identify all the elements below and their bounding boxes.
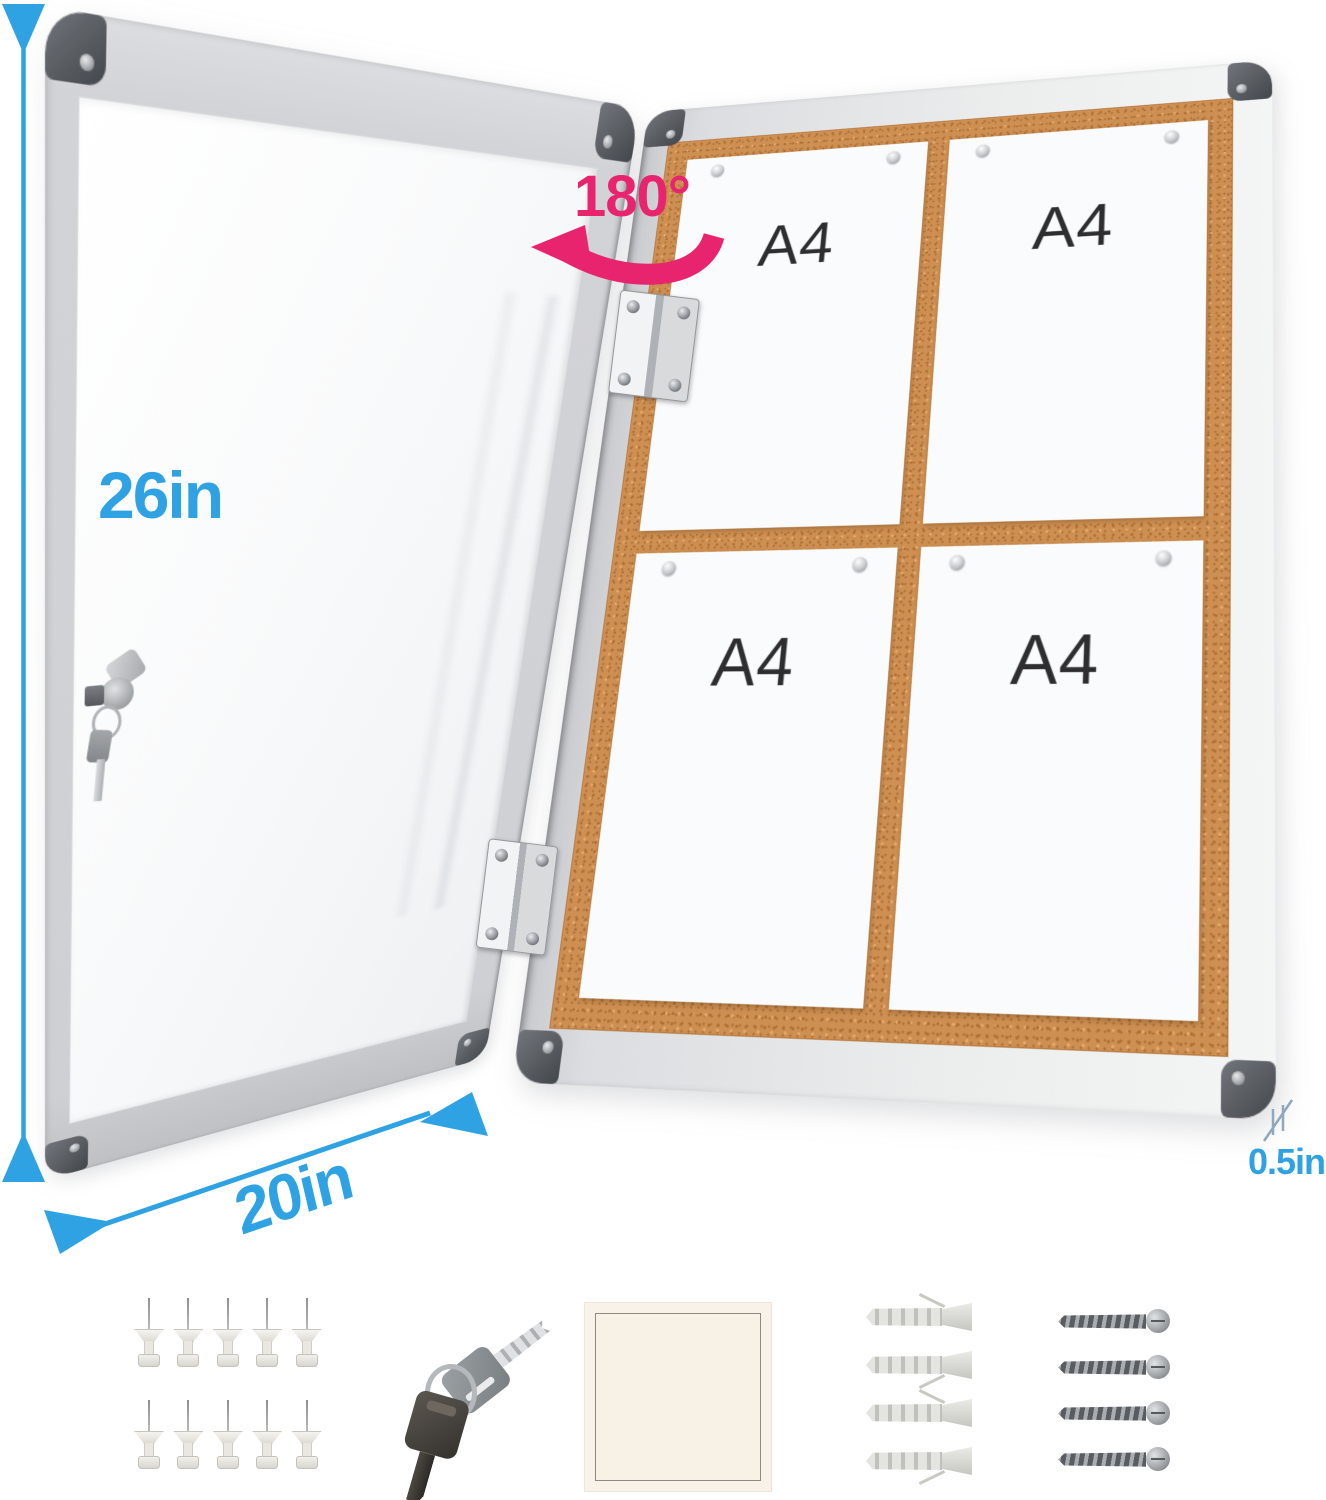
cork-surface: A4 A4 A4 A4 — [549, 98, 1233, 1057]
a4-paper-label: A4 — [675, 623, 798, 1005]
a4-paper: A4 — [579, 547, 898, 1008]
pin-neck — [144, 1443, 154, 1457]
pin-needle — [148, 1298, 150, 1330]
a4-paper: A4 — [923, 120, 1208, 524]
key-blade — [405, 1451, 435, 1500]
wall-anchor-icon — [864, 1444, 976, 1478]
adhesive-pad-inner — [595, 1313, 761, 1481]
screw-shaft — [1058, 1452, 1146, 1467]
corner-cap-icon — [455, 1027, 491, 1066]
hanging-key-icon — [86, 730, 113, 763]
corner-cap-icon — [45, 1133, 88, 1180]
pin-needle — [266, 1400, 268, 1432]
screw-icon — [1058, 1444, 1170, 1474]
anchor-wing — [919, 1470, 945, 1485]
corner-cap-icon — [1221, 1059, 1276, 1120]
screw-icon — [1058, 1352, 1170, 1382]
corner-cap-icon — [512, 1029, 565, 1084]
width-arrowhead-right-icon — [420, 1092, 488, 1136]
pin-needle — [306, 1400, 308, 1432]
push-pin-icon — [976, 144, 990, 157]
anchor-body — [866, 1356, 942, 1374]
pin-neck — [262, 1341, 272, 1355]
pin-base — [256, 1456, 278, 1469]
width-dimension-label: 20in — [196, 1132, 390, 1257]
height-arrowhead-bottom-icon — [2, 1138, 45, 1182]
hinge-screw-icon — [535, 853, 549, 867]
pin-needle — [227, 1400, 229, 1432]
pin-base — [138, 1456, 160, 1469]
pin-base — [217, 1456, 239, 1469]
push-pin-icon — [886, 151, 900, 164]
adhesive-pad-icon — [584, 1302, 772, 1492]
pin-needle — [227, 1298, 229, 1330]
pin-needle — [148, 1400, 150, 1432]
a4-papers-grid: A4 A4 A4 A4 — [579, 120, 1208, 1021]
pin-base — [177, 1456, 199, 1469]
wall-anchor-icon — [864, 1300, 976, 1334]
screw-shaft — [1058, 1360, 1146, 1375]
pin-needle — [187, 1400, 189, 1432]
pin-needle — [306, 1298, 308, 1330]
pin-base — [217, 1354, 239, 1367]
pin-base — [296, 1456, 318, 1469]
anchor-wing — [919, 1293, 945, 1308]
hinge-screw-icon — [626, 299, 640, 313]
screw-icon — [1232, 1071, 1245, 1085]
pin-base — [138, 1354, 160, 1367]
screw-head — [1146, 1355, 1170, 1379]
push-pin-icon — [291, 1296, 323, 1390]
anchor-body — [866, 1404, 942, 1422]
pin-needle — [266, 1298, 268, 1330]
a4-paper-label: A4 — [993, 619, 1101, 1017]
hinge-screw-icon — [617, 372, 631, 386]
anchor-collar — [942, 1447, 972, 1475]
wall-anchor-icon — [864, 1396, 976, 1430]
pin-base — [296, 1354, 318, 1367]
cam-lock-with-keys — [81, 652, 158, 817]
push-pin-icon — [291, 1398, 323, 1492]
hinge-icon — [476, 838, 559, 956]
push-pin-icon — [172, 1398, 204, 1492]
screw-head — [1146, 1401, 1170, 1425]
push-pin-icon — [133, 1296, 165, 1390]
thickness-dimension-label: 0.5in — [1248, 1144, 1325, 1180]
pin-neck — [223, 1341, 233, 1355]
pin-neck — [183, 1443, 193, 1457]
pin-neck — [262, 1443, 272, 1457]
push-pin-icon — [212, 1398, 244, 1492]
push-pin-icon — [662, 561, 678, 576]
pin-neck — [183, 1341, 193, 1355]
a4-paper-label: A4 — [727, 209, 837, 529]
screw-icon — [602, 134, 613, 149]
hinge-screw-icon — [494, 848, 508, 862]
screw-icon — [542, 1041, 555, 1054]
push-pin-icon — [212, 1296, 244, 1390]
lock-bracket-icon — [85, 685, 105, 707]
pin-neck — [223, 1443, 233, 1457]
push-pin-icon — [133, 1398, 165, 1492]
rotation-angle-label: 180° — [574, 168, 690, 226]
anchor-collar — [942, 1303, 972, 1331]
wall-anchor-icon — [864, 1348, 976, 1382]
pin-needle — [187, 1298, 189, 1330]
push-pins-set — [133, 1296, 325, 1492]
height-dimension-label: 26in — [98, 462, 222, 528]
hanging-key-blade-icon — [93, 759, 105, 801]
screw-icon — [80, 53, 95, 72]
keys-set — [395, 1288, 560, 1500]
anchor-collar — [942, 1399, 972, 1427]
anchor-wing — [919, 1374, 945, 1389]
pin-base — [256, 1354, 278, 1367]
wall-anchors-set — [864, 1300, 982, 1478]
width-arrowhead-left-icon — [44, 1210, 112, 1254]
product-image-canvas: A4 A4 A4 A4 — [0, 0, 1326, 1500]
anchor-body — [866, 1452, 942, 1470]
push-pin-icon — [251, 1296, 283, 1390]
push-pin-icon — [1155, 550, 1171, 566]
push-pin-icon — [852, 557, 868, 572]
screw-icon — [1236, 84, 1247, 94]
push-pin-icon — [251, 1398, 283, 1492]
screw-head — [1146, 1447, 1170, 1471]
hinge-screw-icon — [677, 306, 691, 320]
screw-head — [1146, 1309, 1170, 1333]
pin-neck — [144, 1341, 154, 1355]
hinge-screw-icon — [485, 926, 499, 940]
screw-icon — [463, 1038, 472, 1047]
push-pin-icon — [1164, 130, 1179, 144]
screw-icon — [666, 130, 676, 139]
corner-cap-icon — [1227, 60, 1272, 102]
anchor-wing — [919, 1389, 945, 1404]
screw-icon — [1058, 1306, 1170, 1336]
hinge-icon — [608, 290, 700, 403]
screw-icon — [1058, 1398, 1170, 1428]
pin-neck — [302, 1341, 312, 1355]
a4-paper-label: A4 — [1018, 190, 1115, 521]
anchor-body — [866, 1308, 942, 1326]
height-arrowhead-top-icon — [2, 4, 45, 48]
screw-icon — [70, 1142, 80, 1153]
screw-shaft — [1058, 1314, 1146, 1329]
hinge-screw-icon — [525, 931, 539, 945]
push-pin-icon — [950, 555, 966, 570]
corner-cap-icon — [593, 101, 640, 163]
pin-base — [177, 1354, 199, 1367]
pin-neck — [302, 1443, 312, 1457]
key-blade — [493, 1318, 550, 1368]
push-pin-icon — [711, 164, 725, 177]
corner-cap-icon — [45, 6, 107, 87]
door-glass — [69, 96, 598, 1125]
push-pin-icon — [172, 1296, 204, 1390]
dark-key-icon — [378, 1386, 479, 1500]
a4-paper: A4 — [889, 540, 1204, 1021]
anchor-collar — [942, 1351, 972, 1379]
screws-set — [1058, 1306, 1176, 1474]
screw-shaft — [1058, 1406, 1146, 1421]
hinge-screw-icon — [668, 378, 682, 392]
